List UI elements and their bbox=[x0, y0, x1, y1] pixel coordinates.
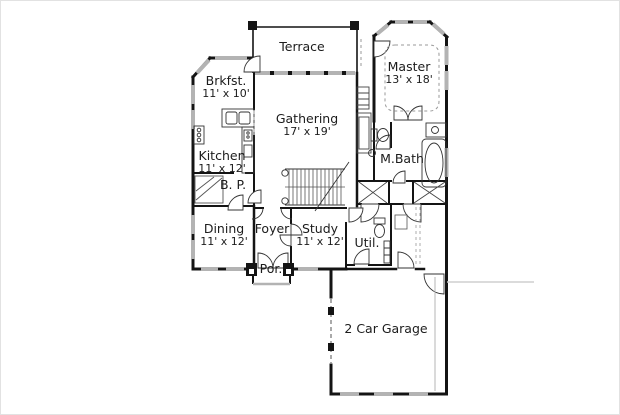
closet-x-icon bbox=[359, 182, 387, 203]
floor-plan-drawing bbox=[1, 1, 620, 415]
closets bbox=[359, 182, 445, 203]
range-icon bbox=[194, 126, 204, 144]
toilet-icon bbox=[374, 218, 385, 238]
door-utility-hall bbox=[354, 249, 369, 264]
gathering-builtins bbox=[357, 87, 371, 153]
garage-post-icon bbox=[328, 343, 334, 351]
sink-icon bbox=[239, 112, 250, 124]
foyer-arch-arcs bbox=[252, 208, 292, 219]
door-closet bbox=[393, 171, 405, 183]
door-master-right bbox=[408, 106, 422, 120]
closet-x-icon bbox=[414, 182, 445, 203]
terrace-post-icon bbox=[248, 21, 257, 30]
door-rear bbox=[398, 252, 414, 268]
door-study-a bbox=[291, 224, 302, 235]
tub-surround bbox=[422, 139, 446, 187]
door-stair-hall bbox=[361, 204, 379, 222]
door-swings bbox=[228, 41, 444, 294]
front-door-left bbox=[258, 253, 273, 268]
garage-post-icon bbox=[328, 307, 334, 315]
kitchen-fixtures bbox=[194, 109, 254, 173]
sink-icon bbox=[432, 127, 439, 134]
door-study-b bbox=[280, 235, 291, 246]
master-ceiling-dashed bbox=[385, 45, 439, 111]
door-garage-entry bbox=[424, 274, 444, 294]
interior-walls bbox=[193, 73, 446, 269]
dishwasher-icon bbox=[244, 145, 252, 157]
door-master-left bbox=[394, 106, 408, 120]
bathtub-icon bbox=[425, 143, 443, 183]
sink-icon bbox=[226, 112, 237, 124]
bench-icon bbox=[395, 215, 407, 229]
door-master-entry bbox=[374, 41, 390, 57]
staircase bbox=[282, 162, 349, 211]
terrace-structure bbox=[248, 21, 359, 75]
floor-plan: Terrace Master13' x 18' Brkfst.11' x 10'… bbox=[0, 0, 620, 415]
door-butlers-pantry bbox=[248, 190, 261, 203]
door-mbath-hall bbox=[403, 204, 421, 222]
door-dining bbox=[228, 195, 243, 210]
garage-details bbox=[328, 277, 534, 391]
mbath-fixtures bbox=[369, 123, 447, 187]
utility-fixtures bbox=[374, 218, 390, 263]
terrace-post-icon bbox=[350, 21, 359, 30]
pantry-shelves bbox=[195, 176, 223, 203]
